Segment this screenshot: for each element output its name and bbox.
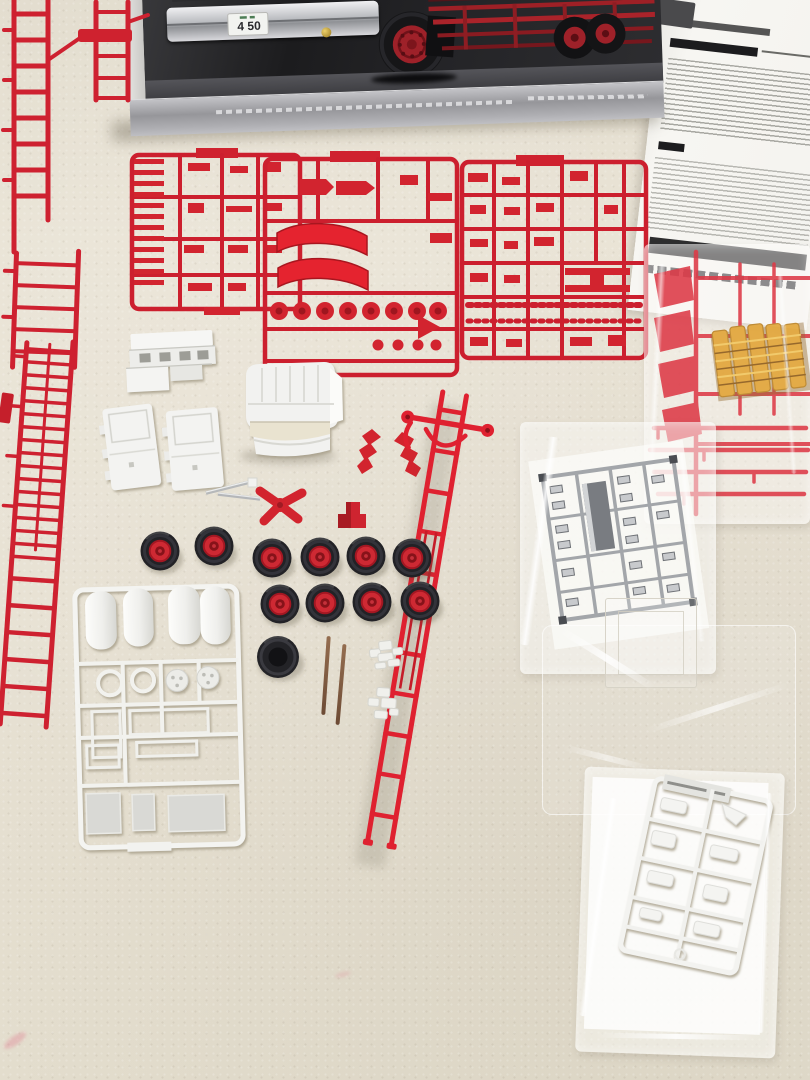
tank-parts-sprue [66,578,261,873]
clear-window-part [605,598,697,688]
red-nozzle-part-a [352,426,386,478]
table-smudge [2,1029,28,1051]
small-clear-part-clusters [366,636,420,734]
paper-text-block-2 [647,157,810,247]
photo-scene: 4 50 [0,0,810,1080]
bag-white-sprue [575,767,785,1059]
table-smudge [335,970,352,979]
kit-box: 4 50 [126,0,665,135]
front-panel [124,328,224,406]
cab-shell [230,358,348,470]
flat-panel-parts [86,790,225,834]
paper-title-line [674,18,770,36]
fender-part [277,224,368,290]
white-detail-sprue [575,767,785,1059]
grille-parts-sprue [132,148,300,315]
disc-parts [166,666,220,691]
axle-rod-1 [321,636,331,715]
svg-text:4 50: 4 50 [237,19,261,34]
box-fineprint-row-2 [528,94,648,100]
paper-line [762,50,810,59]
paper-text-block-1 [660,58,810,149]
fender-parts-sprue [265,151,457,375]
clear-part-inner-line [618,611,684,675]
amber-light-parts [710,318,810,401]
tank-cylinders [85,585,232,650]
axle-rod-2 [335,644,346,725]
red-bar-part [78,29,132,42]
truck-license-plate: 4 50 [228,12,269,35]
paper-black-bar-1 [670,38,758,57]
box-fineprint-row [216,100,516,114]
detail-parts-sprue [462,155,646,358]
truck-rear-wheels [548,7,660,71]
